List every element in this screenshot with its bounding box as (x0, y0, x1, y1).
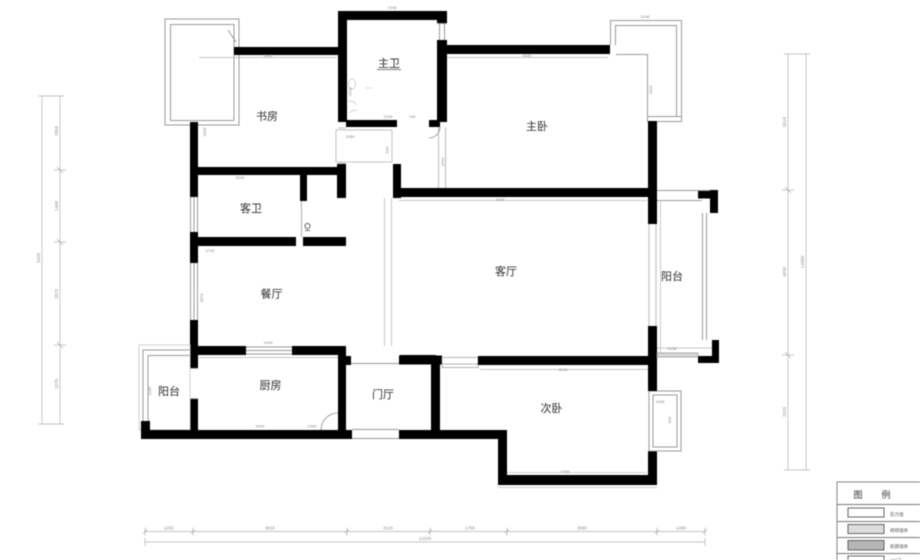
svg-text:阳台: 阳台 (158, 384, 180, 398)
svg-text:1500: 1500 (348, 87, 353, 97)
svg-text:746: 746 (409, 114, 416, 119)
svg-text:4830: 4830 (782, 266, 787, 277)
svg-text:2918: 2918 (782, 406, 787, 417)
svg-text:1480: 1480 (676, 526, 687, 531)
svg-text:阳台: 阳台 (661, 269, 683, 283)
svg-text:次卧: 次卧 (541, 401, 563, 415)
svg-text:2873: 2873 (54, 288, 59, 299)
svg-text:5090: 5090 (256, 424, 266, 429)
svg-text:1185: 1185 (147, 386, 152, 395)
svg-text:1570: 1570 (54, 378, 59, 389)
svg-text:主卧: 主卧 (526, 120, 548, 133)
svg-text:4246: 4246 (496, 197, 506, 202)
svg-text:2820: 2820 (648, 85, 653, 95)
svg-text:客卫: 客卫 (240, 201, 262, 215)
svg-text:3816: 3816 (265, 526, 276, 531)
svg-text:2048: 2048 (641, 14, 651, 19)
svg-text:2873: 2873 (199, 293, 204, 303)
svg-text:1031: 1031 (164, 526, 175, 531)
svg-text:客厅: 客厅 (495, 264, 517, 278)
svg-text:2756: 2756 (561, 469, 571, 474)
svg-text:4040: 4040 (523, 53, 533, 58)
svg-text:3590: 3590 (577, 526, 588, 531)
svg-text:砖砌墙体: 砖砌墙体 (890, 527, 908, 534)
svg-text:1308: 1308 (656, 399, 666, 404)
svg-text:2118: 2118 (383, 526, 393, 531)
svg-text:2248: 2248 (384, 114, 394, 119)
svg-text:2980: 2980 (264, 53, 274, 58)
svg-text:剪力墙: 剪力墙 (890, 511, 904, 518)
svg-text:1449: 1449 (264, 340, 274, 345)
svg-text:厨房: 厨房 (260, 379, 282, 392)
svg-text:书房: 书房 (256, 110, 278, 123)
svg-text:1080: 1080 (346, 134, 356, 139)
svg-text:2858: 2858 (54, 125, 59, 136)
svg-text:5618: 5618 (782, 116, 787, 127)
svg-text:新建墙体: 新建墙体 (890, 543, 908, 550)
svg-text:主卫: 主卫 (378, 57, 400, 70)
svg-text:门厅: 门厅 (372, 387, 394, 401)
svg-text:9428: 9428 (36, 252, 41, 263)
svg-text:2460: 2460 (308, 424, 318, 429)
svg-text:例: 例 (881, 489, 890, 500)
svg-text:14080: 14080 (800, 255, 805, 268)
svg-text:4246: 4246 (559, 367, 569, 372)
svg-text:餐厅: 餐厅 (261, 287, 283, 301)
svg-text:2858: 2858 (202, 127, 207, 137)
svg-text:4158: 4158 (668, 346, 678, 351)
svg-text:600: 600 (667, 416, 672, 423)
svg-text:930: 930 (385, 146, 390, 153)
svg-text:2730: 2730 (206, 248, 216, 253)
svg-text:1758: 1758 (465, 526, 476, 531)
svg-text:1408: 1408 (54, 200, 59, 211)
svg-text:2040: 2040 (236, 175, 246, 180)
svg-text:14200: 14200 (419, 536, 432, 541)
svg-text:图: 图 (853, 490, 862, 500)
svg-text:1048: 1048 (388, 5, 398, 10)
svg-text:1550: 1550 (440, 157, 445, 167)
